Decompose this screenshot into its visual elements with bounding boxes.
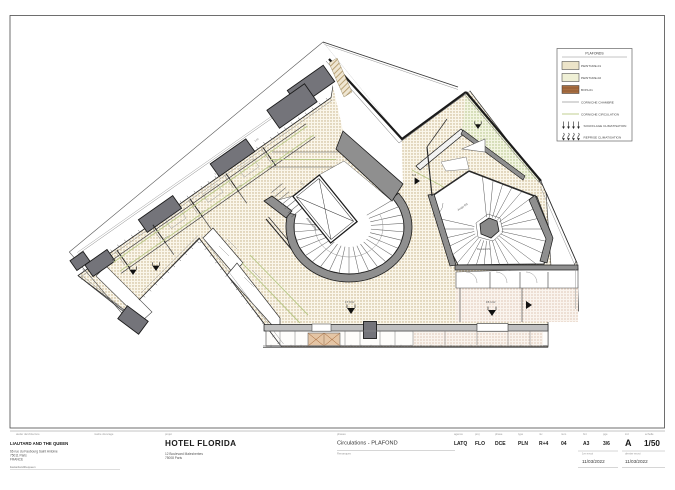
svg-text:echelle: echelle — [645, 432, 654, 436]
svg-text:projet: projet — [165, 432, 172, 436]
svg-text:CORNICHE CHAMBRE: CORNICHE CHAMBRE — [581, 101, 614, 105]
svg-text:1er envoi: 1er envoi — [582, 452, 593, 456]
svg-text:R+4: R+4 — [539, 441, 549, 447]
svg-text:maitre douvrage: maitre douvrage — [94, 432, 114, 436]
svg-text:FRANCE: FRANCE — [10, 458, 23, 462]
svg-text:DCE: DCE — [495, 441, 506, 447]
svg-text:REPRISE CLIMATISATION: REPRISE CLIMATISATION — [584, 136, 622, 140]
svg-text:num: num — [561, 433, 567, 436]
svg-text:PEINTURE-02: PEINTURE-02 — [581, 76, 601, 80]
svg-text:04: 04 — [561, 441, 567, 447]
svg-text:phases: phases — [337, 432, 346, 436]
svg-text:proj: proj — [475, 432, 480, 436]
svg-text:type: type — [518, 432, 524, 436]
svg-text:Remarques: Remarques — [337, 452, 352, 456]
svg-text:PEINTURE-01: PEINTURE-01 — [581, 64, 601, 68]
svg-text:PLN: PLN — [518, 441, 528, 447]
svg-text:ind: ind — [625, 432, 629, 436]
svg-text:liautardandthequeen: liautardandthequeen — [10, 465, 36, 469]
svg-text:FLO: FLO — [475, 441, 485, 447]
svg-text:17.0m²: 17.0m² — [345, 300, 354, 304]
svg-text:6.2: 6.2 — [412, 173, 417, 177]
svg-text:Circulations - PLAFOND: Circulations - PLAFOND — [337, 441, 398, 447]
svg-text:BOIS-01: BOIS-01 — [581, 88, 593, 92]
svg-text:75008 Paris: 75008 Paris — [165, 456, 182, 460]
svg-text:SOUFFLAGE CLIMATISATION: SOUFFLAGE CLIMATISATION — [584, 124, 627, 128]
svg-text:11/03/2022: 11/03/2022 — [582, 459, 605, 464]
svg-text:atelier darchitecture: atelier darchitecture — [16, 432, 40, 436]
svg-text:11/03/2022: 11/03/2022 — [625, 459, 648, 464]
svg-text:LIAUTARD AND THE QUEEN: LIAUTARD AND THE QUEEN — [10, 441, 68, 446]
svg-text:CORNICHE CIRCULATION: CORNICHE CIRCULATION — [581, 113, 619, 117]
svg-text:3/6: 3/6 — [603, 441, 610, 447]
svg-text:agence: agence — [454, 433, 463, 436]
svg-text:PLAFONDS: PLAFONDS — [585, 52, 604, 56]
svg-text:A: A — [625, 438, 632, 448]
svg-text:LATQ: LATQ — [454, 441, 467, 447]
svg-text:A3: A3 — [583, 441, 590, 447]
svg-text:15.1m²: 15.1m² — [486, 300, 495, 304]
svg-text:phase: phase — [495, 432, 503, 436]
svg-text:dernier envoi: dernier envoi — [625, 452, 641, 456]
svg-text:1/50: 1/50 — [644, 439, 660, 448]
svg-text:fmt: fmt — [583, 432, 587, 436]
svg-text:Depuis R3: Depuis R3 — [477, 247, 491, 251]
svg-text:pge: pge — [603, 433, 608, 436]
svg-text:HOTEL FLORIDA: HOTEL FLORIDA — [165, 439, 236, 448]
